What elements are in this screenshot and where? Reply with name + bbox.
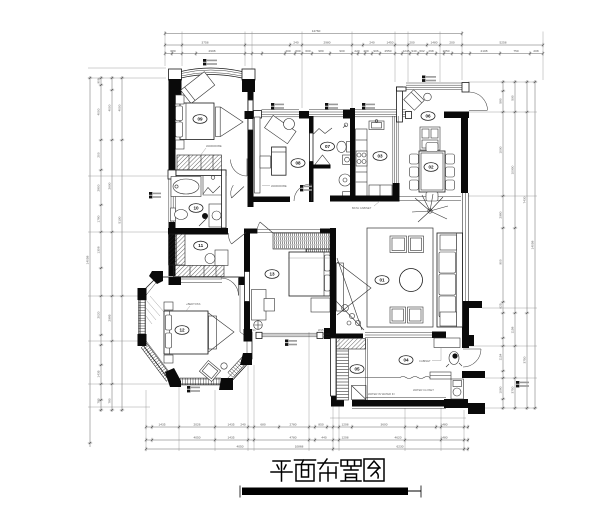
svg-text:2800: 2800 (97, 184, 101, 191)
svg-text:3750: 3750 (511, 386, 515, 393)
svg-text:06: 06 (425, 114, 431, 119)
svg-text:10: 10 (193, 206, 199, 211)
svg-text:04: 04 (403, 358, 409, 363)
svg-text:2026: 2026 (194, 423, 201, 427)
svg-text:14058: 14058 (531, 240, 535, 249)
svg-text:1154: 1154 (499, 353, 503, 360)
svg-text:1780: 1780 (97, 215, 101, 222)
svg-text:1080: 1080 (499, 386, 503, 393)
svg-text:WATER CLOSET: WATER CLOSET (413, 388, 434, 392)
svg-text:4050: 4050 (194, 436, 201, 440)
svg-text:602: 602 (419, 49, 424, 53)
svg-text:4000: 4000 (118, 104, 122, 111)
svg-text:900: 900 (339, 49, 344, 53)
svg-text:1480: 1480 (431, 41, 438, 45)
svg-text:200: 200 (409, 41, 414, 45)
svg-text:2020: 2020 (97, 311, 101, 318)
svg-text:200: 200 (449, 41, 454, 45)
svg-text:WARDROBE: WARDROBE (206, 144, 222, 148)
svg-text:2985: 2985 (108, 314, 112, 321)
svg-text:600: 600 (305, 49, 310, 53)
svg-text:5258: 5258 (500, 41, 507, 45)
svg-text:906: 906 (373, 49, 378, 53)
svg-text:600: 600 (295, 49, 300, 53)
svg-text:780: 780 (97, 398, 101, 403)
svg-text:3600: 3600 (381, 423, 388, 427)
svg-text:1208: 1208 (342, 436, 349, 440)
svg-text:2780: 2780 (290, 423, 297, 427)
svg-text:2980: 2980 (499, 211, 503, 218)
svg-text:2980: 2980 (324, 41, 331, 45)
svg-text:1208: 1208 (342, 423, 349, 427)
svg-text:200: 200 (97, 152, 101, 157)
svg-text:580: 580 (499, 98, 503, 103)
svg-text:750: 750 (513, 49, 518, 53)
svg-text:850: 850 (318, 423, 323, 427)
svg-text:298: 298 (428, 49, 433, 53)
svg-text:440: 440 (321, 436, 326, 440)
svg-text:03: 03 (377, 154, 383, 159)
svg-text:1480: 1480 (441, 436, 448, 440)
svg-text:5190: 5190 (118, 216, 122, 223)
svg-text:980: 980 (318, 49, 323, 53)
svg-text:680: 680 (260, 423, 265, 427)
svg-text:625: 625 (499, 303, 503, 308)
svg-text:940: 940 (411, 49, 416, 53)
svg-text:400: 400 (363, 49, 368, 53)
svg-text:10868: 10868 (295, 444, 304, 448)
svg-text:+BEDTOSS: +BEDTOSS (186, 302, 201, 306)
svg-text:240: 240 (240, 423, 245, 427)
svg-text:4050: 4050 (237, 444, 244, 448)
svg-text:900: 900 (499, 259, 503, 264)
svg-text:09: 09 (197, 117, 203, 122)
svg-text:2108: 2108 (481, 49, 488, 53)
svg-text:1308: 1308 (97, 246, 101, 253)
svg-text:908: 908 (97, 78, 101, 83)
svg-text:780: 780 (108, 398, 112, 403)
svg-text:1158: 1158 (511, 326, 515, 333)
svg-text:6230: 6230 (397, 444, 404, 448)
svg-text:BATH CABINET: BATH CABINET (352, 206, 372, 210)
svg-text:3758: 3758 (202, 41, 209, 45)
svg-text:220: 220 (354, 49, 359, 53)
svg-text:208: 208 (533, 49, 538, 53)
svg-text:240: 240 (369, 41, 374, 45)
svg-text:4780: 4780 (290, 436, 297, 440)
svg-text:2550: 2550 (385, 49, 392, 53)
svg-text:3750: 3750 (523, 356, 527, 363)
svg-text:CABINET: CABINET (419, 359, 431, 363)
svg-text:05: 05 (354, 367, 360, 372)
svg-text:590: 590 (511, 95, 515, 100)
svg-text:12: 12 (179, 328, 185, 333)
svg-text:1450: 1450 (387, 41, 394, 45)
svg-text:1480: 1480 (441, 423, 448, 427)
svg-text:14760: 14760 (312, 29, 321, 33)
svg-text:1435: 1435 (97, 370, 101, 377)
svg-text:11: 11 (198, 243, 203, 248)
svg-text:4000: 4000 (108, 104, 112, 111)
svg-text:13: 13 (269, 272, 275, 277)
svg-text:WARDROBE: WARDROBE (271, 184, 287, 188)
svg-text:240: 240 (293, 41, 298, 45)
svg-text:680: 680 (170, 49, 175, 53)
svg-text:1435: 1435 (159, 423, 166, 427)
svg-text:10900: 10900 (511, 165, 515, 174)
svg-text:W15: W15 (318, 328, 324, 332)
svg-text:2690: 2690 (108, 182, 112, 189)
svg-text:07: 07 (325, 144, 331, 149)
svg-text:1050: 1050 (443, 49, 450, 53)
svg-text:1435: 1435 (228, 423, 235, 427)
svg-text:08: 08 (295, 161, 301, 166)
svg-text:4620: 4620 (395, 436, 402, 440)
svg-text:1090: 1090 (499, 146, 503, 153)
svg-text:01: 01 (379, 278, 385, 283)
svg-text:02: 02 (428, 165, 434, 170)
svg-text:1245: 1245 (403, 49, 410, 53)
svg-text:400: 400 (285, 49, 290, 53)
svg-text:7430: 7430 (523, 196, 527, 203)
svg-text:2908: 2908 (209, 49, 216, 53)
svg-text:WATER IN WATER IN: WATER IN WATER IN (368, 392, 394, 396)
svg-text:4000: 4000 (97, 108, 101, 115)
svg-text:1435: 1435 (228, 436, 235, 440)
svg-text:14058: 14058 (86, 255, 90, 264)
